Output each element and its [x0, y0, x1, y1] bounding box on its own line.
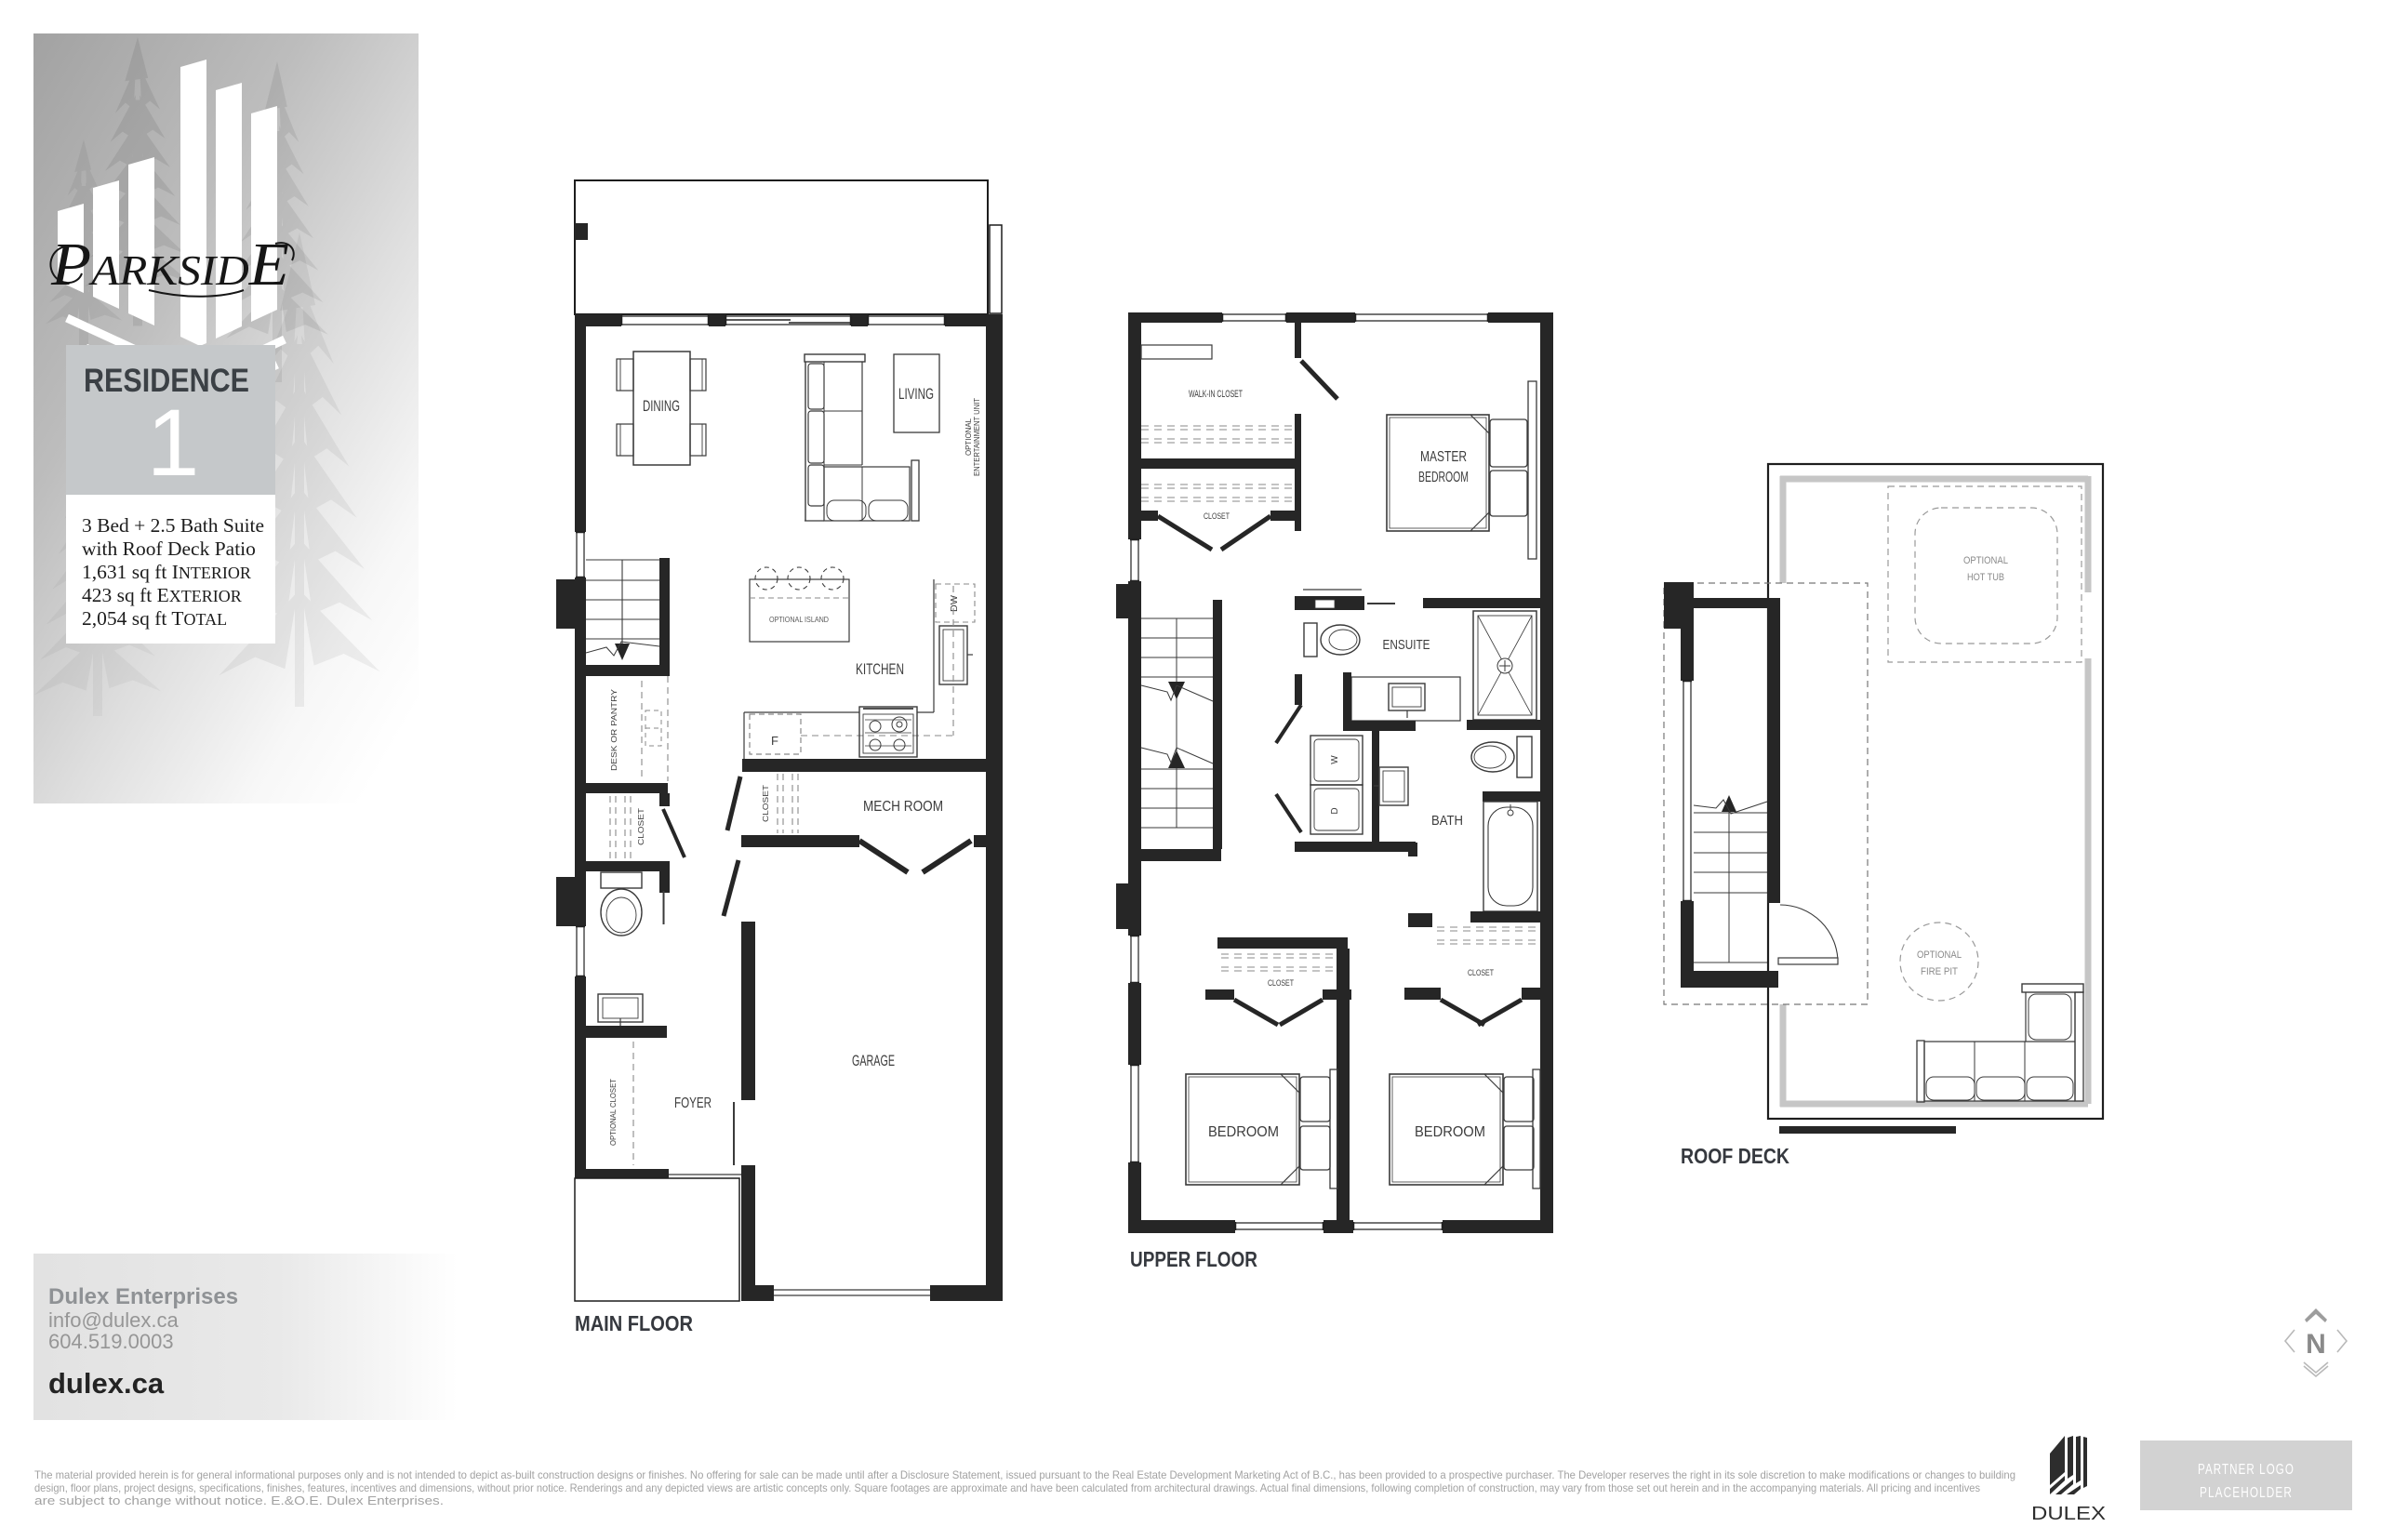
svg-text:ENSUITE: ENSUITE	[1383, 637, 1430, 653]
svg-text:BEDROOM: BEDROOM	[1418, 470, 1469, 485]
svg-text:Dulex Enterprises: Dulex Enterprises	[48, 1284, 238, 1309]
svg-text:CLOSET: CLOSET	[636, 808, 645, 845]
svg-text:are subject to change without: are subject to change without notice. E.…	[34, 1494, 444, 1507]
svg-text:3 Bed + 2.5 Bath Suite: 3 Bed + 2.5 Bath Suite	[82, 514, 264, 537]
svg-text:CLOSET: CLOSET	[1204, 511, 1230, 522]
svg-text:OPTIONAL: OPTIONAL	[1963, 555, 2008, 566]
svg-text:dulex.ca: dulex.ca	[48, 1367, 165, 1400]
svg-text:1,631 sq ft INTERIOR: 1,631 sq ft INTERIOR	[82, 561, 251, 583]
svg-text:CLOSET: CLOSET	[761, 785, 770, 822]
svg-text:2,054 sq ft TOTAL: 2,054 sq ft TOTAL	[82, 607, 227, 630]
svg-text:OPTIONAL: OPTIONAL	[964, 418, 973, 456]
svg-text:PLACEHOLDER: PLACEHOLDER	[2200, 1485, 2293, 1501]
svg-text:info@dulex.ca: info@dulex.ca	[48, 1308, 180, 1332]
svg-text:DULEX: DULEX	[2031, 1504, 2106, 1524]
svg-text:604.519.0003: 604.519.0003	[48, 1330, 174, 1353]
svg-text:CLOSET: CLOSET	[1268, 978, 1294, 989]
svg-text:MECH ROOM: MECH ROOM	[863, 799, 943, 815]
svg-text:OPTIONAL CLOSET: OPTIONAL CLOSET	[608, 1079, 618, 1146]
svg-text:W: W	[1330, 755, 1340, 764]
svg-text:GARAGE: GARAGE	[852, 1052, 895, 1069]
svg-text:MASTER: MASTER	[1420, 449, 1467, 465]
svg-text:HOT TUB: HOT TUB	[1967, 572, 2004, 583]
svg-text:DINING: DINING	[643, 397, 680, 415]
svg-text:BATH: BATH	[1431, 813, 1463, 829]
svg-text:FOYER: FOYER	[674, 1095, 712, 1111]
svg-text:N: N	[2306, 1329, 2326, 1360]
svg-text:MAIN FLOOR: MAIN FLOOR	[575, 1311, 693, 1335]
svg-text:design, floor plans, project d: design, floor plans, project designs, sp…	[34, 1481, 1980, 1494]
svg-text:WALK-IN CLOSET: WALK-IN CLOSET	[1189, 389, 1243, 400]
svg-text:423 sq ft EXTERIOR: 423 sq ft EXTERIOR	[82, 584, 242, 606]
svg-text:ROOF DECK: ROOF DECK	[1681, 1144, 1789, 1168]
svg-text:LIVING: LIVING	[898, 385, 934, 403]
svg-text:BEDROOM: BEDROOM	[1208, 1124, 1279, 1140]
svg-text:F: F	[771, 734, 778, 748]
svg-text:FIRE PIT: FIRE PIT	[1921, 966, 1958, 977]
svg-text:with Roof Deck Patio: with Roof Deck Patio	[82, 538, 256, 560]
svg-text:DESK OR PANTRY: DESK OR PANTRY	[609, 689, 619, 771]
svg-text:PARTNER LOGO: PARTNER LOGO	[2198, 1462, 2295, 1478]
svg-text:UPPER FLOOR: UPPER FLOOR	[1130, 1247, 1257, 1271]
svg-text:CLOSET: CLOSET	[1468, 968, 1494, 978]
svg-text:1: 1	[147, 390, 200, 496]
svg-text:D: D	[1330, 807, 1340, 814]
svg-text:DW: DW	[950, 594, 960, 612]
svg-text:OPTIONAL: OPTIONAL	[1917, 949, 1962, 961]
svg-text:The material provided herein i: The material provided herein is for gene…	[34, 1468, 2015, 1481]
svg-text:OPTIONAL ISLAND: OPTIONAL ISLAND	[769, 615, 829, 624]
svg-text:BEDROOM: BEDROOM	[1415, 1124, 1485, 1140]
svg-text:KITCHEN: KITCHEN	[856, 660, 904, 678]
svg-text:ENTERTAINMENT UNIT: ENTERTAINMENT UNIT	[973, 398, 981, 476]
